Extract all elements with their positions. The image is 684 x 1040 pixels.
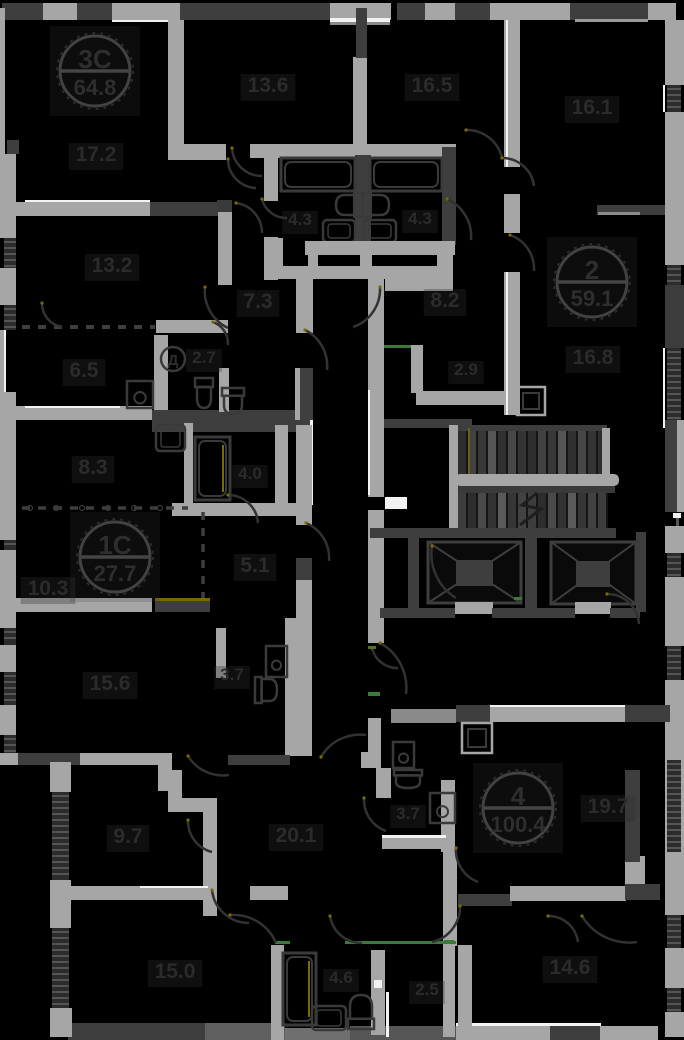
svg-text:3С: 3С: [78, 44, 111, 74]
svg-text:16.1: 16.1: [572, 96, 613, 119]
svg-text:8.2: 8.2: [430, 289, 459, 312]
svg-text:8.3: 8.3: [78, 456, 107, 479]
svg-text:59.1: 59.1: [571, 286, 614, 311]
svg-text:14.6: 14.6: [550, 956, 591, 979]
svg-text:16.8: 16.8: [573, 346, 614, 369]
svg-text:5.1: 5.1: [240, 554, 270, 577]
svg-text:3.7: 3.7: [220, 665, 244, 684]
svg-text:10.3: 10.3: [28, 577, 69, 600]
svg-text:13.2: 13.2: [92, 254, 133, 277]
svg-text:6.5: 6.5: [69, 359, 99, 382]
svg-text:3.7: 3.7: [396, 804, 420, 823]
svg-text:2.7: 2.7: [192, 348, 216, 367]
svg-text:1С: 1С: [98, 530, 131, 560]
svg-text:4.0: 4.0: [238, 464, 262, 483]
svg-text:19.7: 19.7: [588, 795, 629, 818]
svg-text:64.8: 64.8: [74, 75, 117, 100]
svg-text:100.4: 100.4: [490, 812, 546, 837]
svg-text:17.2: 17.2: [76, 143, 117, 166]
svg-text:16.5: 16.5: [412, 74, 453, 97]
svg-text:15.6: 15.6: [90, 672, 131, 695]
svg-text:2.5: 2.5: [415, 980, 439, 999]
svg-text:Д: Д: [168, 352, 179, 369]
svg-text:4.3: 4.3: [288, 210, 312, 229]
svg-text:4: 4: [511, 781, 526, 811]
svg-text:9.7: 9.7: [113, 825, 142, 848]
svg-text:27.7: 27.7: [94, 561, 137, 586]
svg-text:2: 2: [585, 255, 599, 285]
svg-text:7.3: 7.3: [243, 290, 272, 313]
svg-text:13.6: 13.6: [248, 74, 289, 97]
svg-text:15.0: 15.0: [155, 960, 196, 983]
svg-text:2.9: 2.9: [454, 360, 478, 379]
svg-text:4.6: 4.6: [329, 968, 353, 987]
svg-text:4.3: 4.3: [408, 209, 432, 228]
svg-text:20.1: 20.1: [276, 824, 317, 847]
